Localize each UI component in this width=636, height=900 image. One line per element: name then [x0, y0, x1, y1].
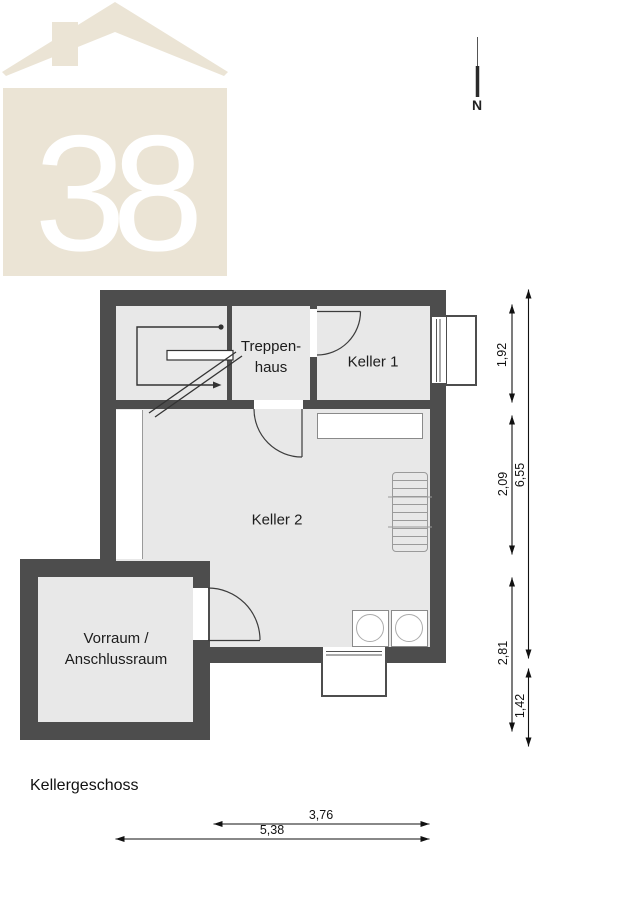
washer-drum-icon	[395, 614, 423, 642]
dimension-label: 2,09	[496, 472, 510, 496]
logo-roof	[2, 2, 228, 76]
dimension-label: 6,55	[513, 463, 527, 487]
dimension-label: 3,76	[309, 808, 333, 822]
room-label-keller2: Keller 2	[252, 510, 303, 531]
dimension-label: 2,81	[496, 641, 510, 665]
room-label-vorraum: Vorraum / Anschlussraum	[65, 628, 168, 670]
room-stairwell-floor	[116, 306, 227, 400]
washing-machine-icon	[352, 610, 389, 647]
room-label-treppenhaus: Treppen- haus	[241, 336, 301, 378]
door-opening-keller1	[310, 309, 317, 357]
dimension-label: 1,42	[513, 694, 527, 718]
door-opening-treppenhaus-keller2	[254, 400, 303, 409]
washer-drum-icon	[356, 614, 384, 642]
lightwell-right	[445, 315, 477, 386]
plan-title: Kellergeschoss	[30, 777, 139, 795]
room-label-line: Treppen-	[241, 336, 301, 357]
dimension-label: 5,38	[260, 823, 284, 837]
room-label-line: Vorraum /	[65, 628, 168, 649]
room-label-line: Anschlussraum	[65, 649, 168, 670]
workbench-symbol	[317, 413, 423, 439]
ladder-symbol	[392, 472, 428, 552]
floorplan-canvas: 38	[0, 0, 636, 900]
north-label: N	[472, 97, 482, 113]
dimension-label: 1,92	[495, 343, 509, 367]
logo-number: 38	[34, 101, 197, 285]
room-label-keller1: Keller 1	[348, 352, 399, 373]
window-bottom	[323, 647, 385, 663]
room-label-line: haus	[241, 357, 301, 378]
washing-machine-icon	[391, 610, 428, 647]
shaft-recess	[116, 410, 143, 559]
logo-house-icon: 38	[0, 0, 240, 290]
door-opening-vorraum	[193, 588, 208, 640]
lightwell-bottom	[321, 661, 387, 697]
window-right	[432, 317, 446, 383]
